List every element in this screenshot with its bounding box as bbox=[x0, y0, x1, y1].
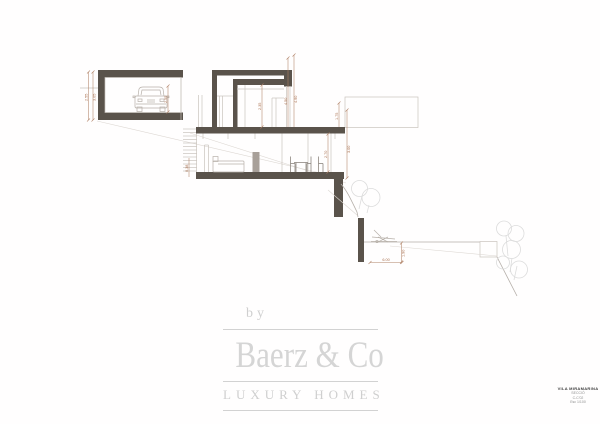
logo-name-text: Baerz & Co bbox=[235, 332, 365, 379]
dim-label-right-total: 3.00 bbox=[347, 146, 351, 153]
sun-lounger bbox=[371, 230, 397, 243]
brand-logo: by Baerz & Co LUXURY HOMES bbox=[223, 306, 378, 413]
terrain bbox=[328, 184, 517, 296]
dim-label-right-upper: 1.75 bbox=[335, 113, 339, 120]
title-block-scale: Esc 1/100 bbox=[557, 400, 599, 405]
title-block: VILA MIRAMARINA SECCIÓ C-C'02 Esc 1/100 bbox=[557, 386, 599, 405]
dim-label-roof-a: 4.50 bbox=[284, 98, 288, 105]
logo-rule-bottom bbox=[223, 410, 378, 411]
trees-right bbox=[497, 221, 528, 280]
dim-label-upper-clear: 2.35 bbox=[258, 103, 262, 110]
dim-label-terrace-drop: 1.90 bbox=[402, 250, 406, 257]
dim-label-garage-clear: 2.55 bbox=[164, 96, 168, 103]
logo-rule-top bbox=[223, 329, 378, 330]
upper-floor bbox=[212, 70, 418, 128]
garage bbox=[98, 70, 183, 120]
dim-label-roof-b: 4.90 bbox=[294, 96, 298, 103]
logo-tagline-text: LUXURY HOMES bbox=[223, 384, 378, 408]
dim-label-living-clear: 2.70 bbox=[324, 151, 328, 158]
dim-label-stair: 0.38 bbox=[185, 165, 189, 172]
kitchen-island bbox=[253, 152, 260, 172]
page: 2.55 3.05 2.55 2.35 4.50 4.90 1.75 bbox=[0, 0, 600, 424]
logo-rule-middle bbox=[223, 381, 378, 382]
dining-set bbox=[291, 157, 324, 173]
dim-label-garage-inner: 3.05 bbox=[93, 94, 97, 101]
trees-left bbox=[352, 181, 381, 214]
dim-label-terrace-width: 6.00 bbox=[382, 258, 389, 262]
logo-by-text: by bbox=[223, 306, 378, 327]
dim-label-garage-outer: 2.55 bbox=[85, 94, 89, 101]
sofa bbox=[213, 157, 244, 173]
